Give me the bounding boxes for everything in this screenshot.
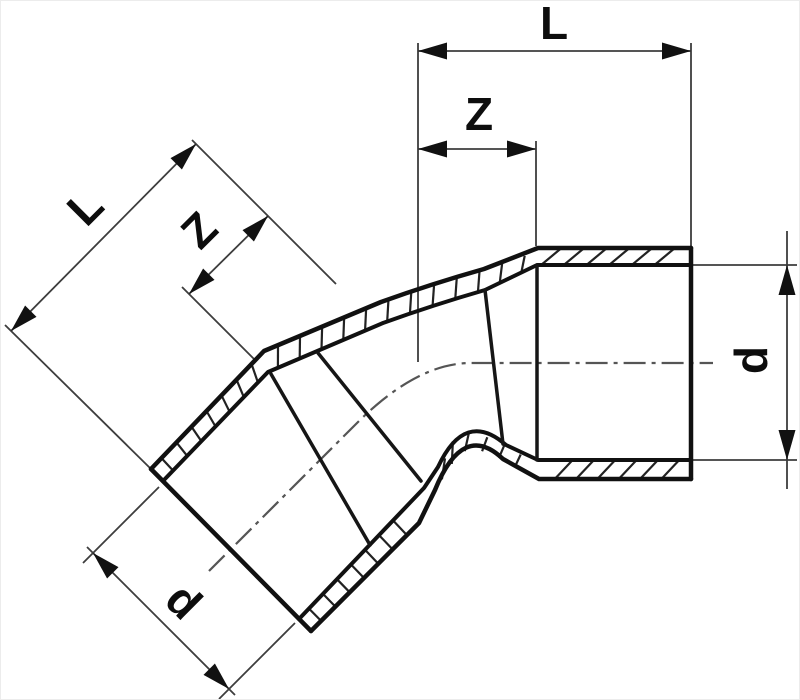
hatch-tick [478, 271, 480, 292]
dim-left-diameter: d [83, 487, 295, 699]
label-right-diameter: d [725, 346, 777, 374]
arrowhead-right-icon [662, 43, 691, 60]
hatch-tick [237, 380, 244, 398]
extension-line-left-vertex [192, 140, 336, 284]
hatch-tick [192, 427, 202, 442]
dim-top-length: L [418, 1, 691, 362]
hatch-tick [656, 249, 674, 264]
arrowhead-up-icon [779, 265, 796, 295]
hatch-tick [365, 550, 378, 564]
hatch-tick [610, 249, 628, 264]
hatch-tick [556, 461, 572, 478]
label-left-length: L [57, 179, 114, 236]
label-left-diameter: d [156, 573, 213, 630]
hatch-tick [222, 395, 230, 412]
label-top-length: L [540, 1, 568, 49]
hatch-tick [323, 594, 335, 607]
outer-contour-top [151, 248, 691, 469]
hatch-tick [343, 319, 344, 340]
hatch-tick [309, 609, 321, 621]
label-left-socket-depth: Z [171, 202, 228, 259]
arrowhead-down-icon [779, 430, 796, 460]
hatch-tick [162, 458, 174, 471]
hatch-tick [410, 293, 411, 314]
arrowhead-right-icon [507, 141, 536, 158]
label-top-socket-depth: Z [465, 88, 493, 140]
dim-left-socket-depth: Z [171, 202, 268, 360]
hatch-tick [207, 411, 216, 427]
hatch-tick [620, 461, 636, 478]
hatch-tick [177, 442, 188, 456]
arrowhead-left-icon [418, 43, 447, 60]
arrowhead-left-icon [418, 141, 447, 158]
dimension-line-left-length [11, 144, 196, 331]
hatch-tick [387, 301, 388, 322]
taper-shoulder-line-left [318, 353, 421, 481]
dim-right-diameter: d [692, 231, 797, 489]
hatch-tick [322, 328, 323, 349]
elbow-fitting-drawing: L Z d L [1, 1, 800, 700]
dim-left-length: L [5, 140, 336, 469]
hatch-tick [565, 249, 583, 264]
hatch-tick [379, 535, 393, 549]
extension-line-left-mouth [5, 325, 151, 469]
extension-line-bore-lower [219, 623, 295, 699]
hatch-tick [542, 249, 560, 264]
hatch-tick [598, 461, 614, 478]
hatch-tick [662, 461, 678, 478]
hatch-tick [393, 520, 407, 535]
hatch-tick [337, 579, 350, 592]
fitting-body [151, 248, 691, 631]
hatch-tick [365, 309, 366, 330]
hatch-tick [252, 364, 258, 383]
extension-line-left-socket-stop [182, 287, 255, 360]
hatch-tick [633, 249, 651, 264]
hatch-tick [641, 461, 657, 478]
wall-hatching [162, 249, 679, 621]
hatch-tick [588, 249, 606, 264]
taper-shoulder-line-right [485, 290, 503, 444]
dim-top-socket-depth: Z [418, 88, 536, 246]
technical-drawing-page: L Z d L [0, 0, 800, 700]
hatch-tick [577, 461, 593, 478]
hatch-tick [351, 565, 364, 579]
extension-line-bore-upper [83, 487, 159, 563]
